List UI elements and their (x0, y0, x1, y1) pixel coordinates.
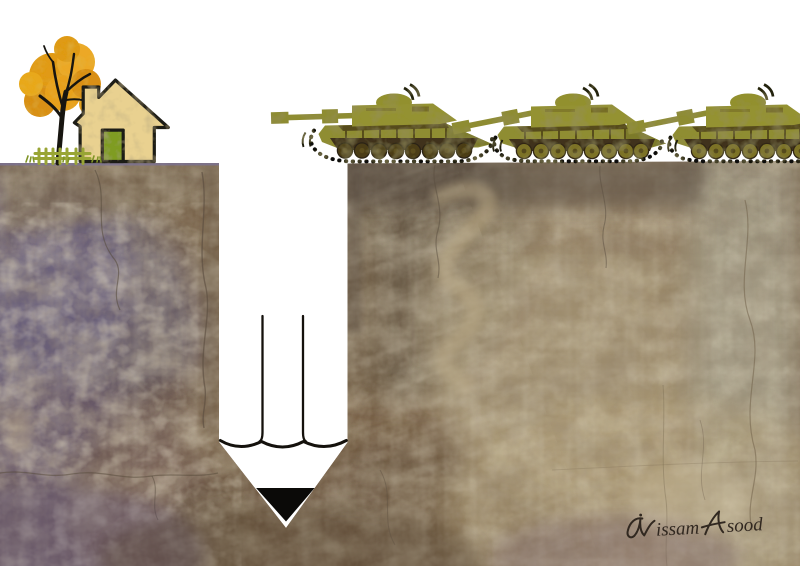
svg-text:sood: sood (726, 514, 763, 537)
svg-text:issam: issam (655, 518, 699, 541)
